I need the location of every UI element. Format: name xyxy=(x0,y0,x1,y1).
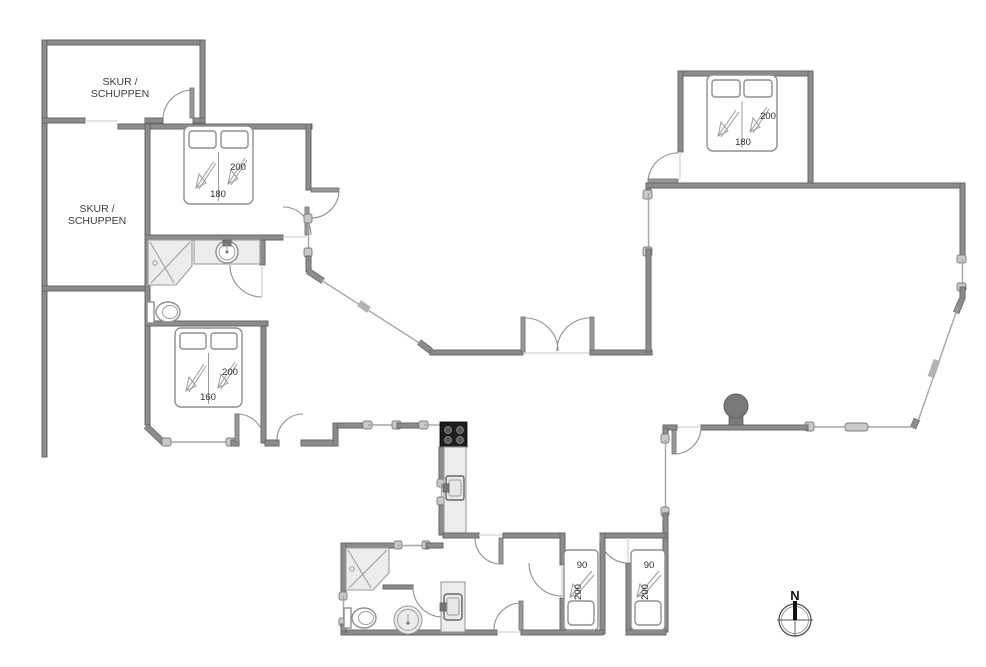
shed-lower-label: SKUR / SCHUPPEN xyxy=(68,203,126,227)
living-room-walls xyxy=(646,183,966,632)
top-right-bedroom-door-leaf xyxy=(648,179,678,183)
shed-lower-label-line2: SCHUPPEN xyxy=(68,215,126,227)
shed-upper-label-line2: SCHUPPEN xyxy=(91,88,149,100)
bed-south-2: 90 200 xyxy=(631,550,665,630)
floor-plan-canvas: 200 180 200 180 200 160 90 200 xyxy=(0,0,986,667)
bottom-bathroom xyxy=(339,541,465,634)
courtyard-diagonal-window-wall xyxy=(308,271,431,351)
toilet-top xyxy=(147,302,180,323)
shed-upper-label-line1: SKUR / xyxy=(102,76,137,88)
south-exit-door-leaf xyxy=(519,601,523,630)
hall-door-leaf xyxy=(499,538,503,564)
south-door1-leaf xyxy=(235,414,239,442)
bed-south-1-length: 200 xyxy=(573,584,584,600)
living-room-door-leaf xyxy=(672,427,676,454)
bed-top-right: 200 180 xyxy=(707,75,777,151)
compass-needle xyxy=(793,601,797,620)
courtyard-door-west-leaf xyxy=(311,188,339,192)
shed-lower-label-line1: SKUR / xyxy=(79,203,114,215)
french-door-right-leaf xyxy=(590,317,594,352)
shed-door-leaf xyxy=(190,88,194,118)
floor-plan-page: 200 180 200 180 200 160 90 200 xyxy=(0,0,986,667)
bed-south-2-width: 90 xyxy=(644,560,655,571)
bed-top-left: 200 180 xyxy=(184,126,253,204)
shed-upper-label: SKUR / SCHUPPEN xyxy=(91,76,149,100)
bed-top-right-length: 200 xyxy=(760,111,776,122)
bed-middle-left-length: 200 xyxy=(222,367,238,378)
bed-top-left-length: 200 xyxy=(230,162,246,173)
french-door-left-leaf xyxy=(521,317,525,352)
bed-top-left-width: 180 xyxy=(210,189,226,200)
bed-middle-left-width: 160 xyxy=(200,392,216,403)
kitchen xyxy=(437,422,467,535)
bed-south-1: 90 200 xyxy=(564,550,598,630)
bed-south-2-length: 200 xyxy=(640,584,651,600)
bed-top-right-width: 180 xyxy=(735,137,751,148)
compass-rose: N xyxy=(777,588,813,637)
toilet-bottom xyxy=(344,608,376,628)
stove-cooktop xyxy=(440,422,467,447)
bed-middle-left: 200 160 xyxy=(175,328,242,407)
top-left-bathroom xyxy=(147,240,260,323)
dining-walls xyxy=(430,183,652,355)
bed-south-1-width: 90 xyxy=(577,560,588,571)
compass-north-label: N xyxy=(790,588,799,603)
round-basin xyxy=(394,606,422,634)
wood-stove xyxy=(724,394,748,425)
